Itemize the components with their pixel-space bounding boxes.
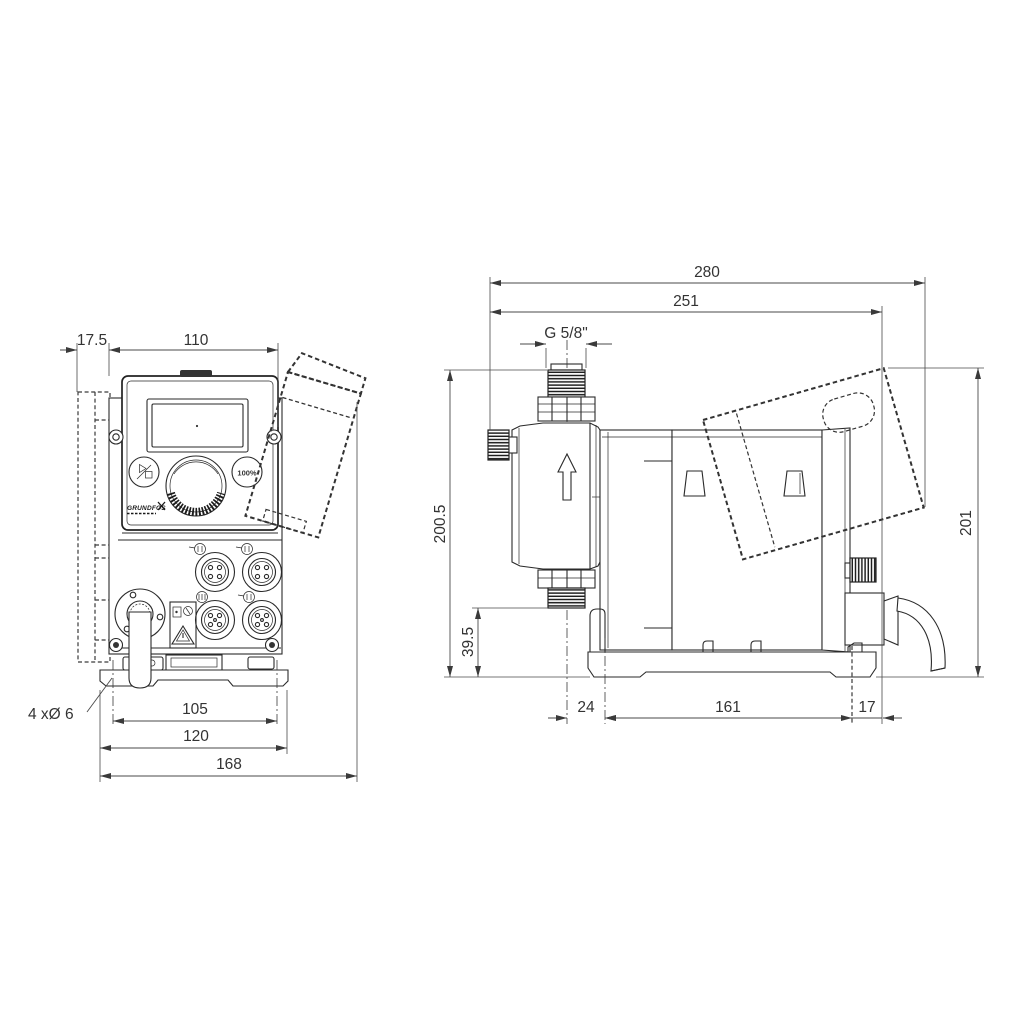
power-cable-front [129,612,151,688]
top-tab [180,370,212,377]
dim-thread-size: G 5/8" [544,325,587,342]
dim-total-height: 200.5 [432,505,449,544]
technical-drawing-page: 100% GRUNDFOS [0,0,1024,1024]
dim-base-front-offset: 24 [577,699,595,716]
gland-thread [850,558,876,582]
suction-thread [548,588,585,608]
dim-overall-width: 168 [216,756,242,773]
corner-screw-left [110,639,123,652]
hinge-screw-left [109,430,123,444]
dim-plate-width: 120 [183,728,209,745]
m12-socket[interactable] [196,553,235,592]
dim-overall-depth: 280 [694,264,720,281]
control-panel: 100% GRUNDFOS [109,370,282,540]
m12-socket[interactable] [196,601,235,640]
dimensional-drawing-canvas: 100% GRUNDFOS [0,0,1024,1024]
hundred-percent-label: 100% [237,469,257,478]
discharge-nut [538,397,595,421]
dim-base-hole-spacing: 161 [715,699,741,716]
dim-depth-to-cover: 251 [673,293,699,310]
start-stop-button[interactable] [129,457,159,487]
dim-hole-spacing: 105 [182,701,208,718]
dim-top-width: 110 [184,332,209,349]
dim-cover-height: 201 [958,510,975,536]
suction-nut [538,570,595,588]
m12-socket[interactable] [243,601,282,640]
motor-section [600,430,672,650]
cable-entry-block [845,593,884,645]
dim-wall-offset: 17.5 [77,332,107,349]
hole-note: 4 xØ 6 [28,706,74,723]
cable-boot [884,596,898,645]
click-wheel[interactable] [166,456,226,516]
dim-suction-height: 39.5 [460,627,477,657]
m12-socket[interactable] [243,553,282,592]
discharge-thread [548,370,585,397]
corner-screw-right [266,639,279,652]
svg-text:GRUNDFOS: GRUNDFOS [127,505,166,512]
dim-base-rear-offset: 17 [858,699,875,716]
